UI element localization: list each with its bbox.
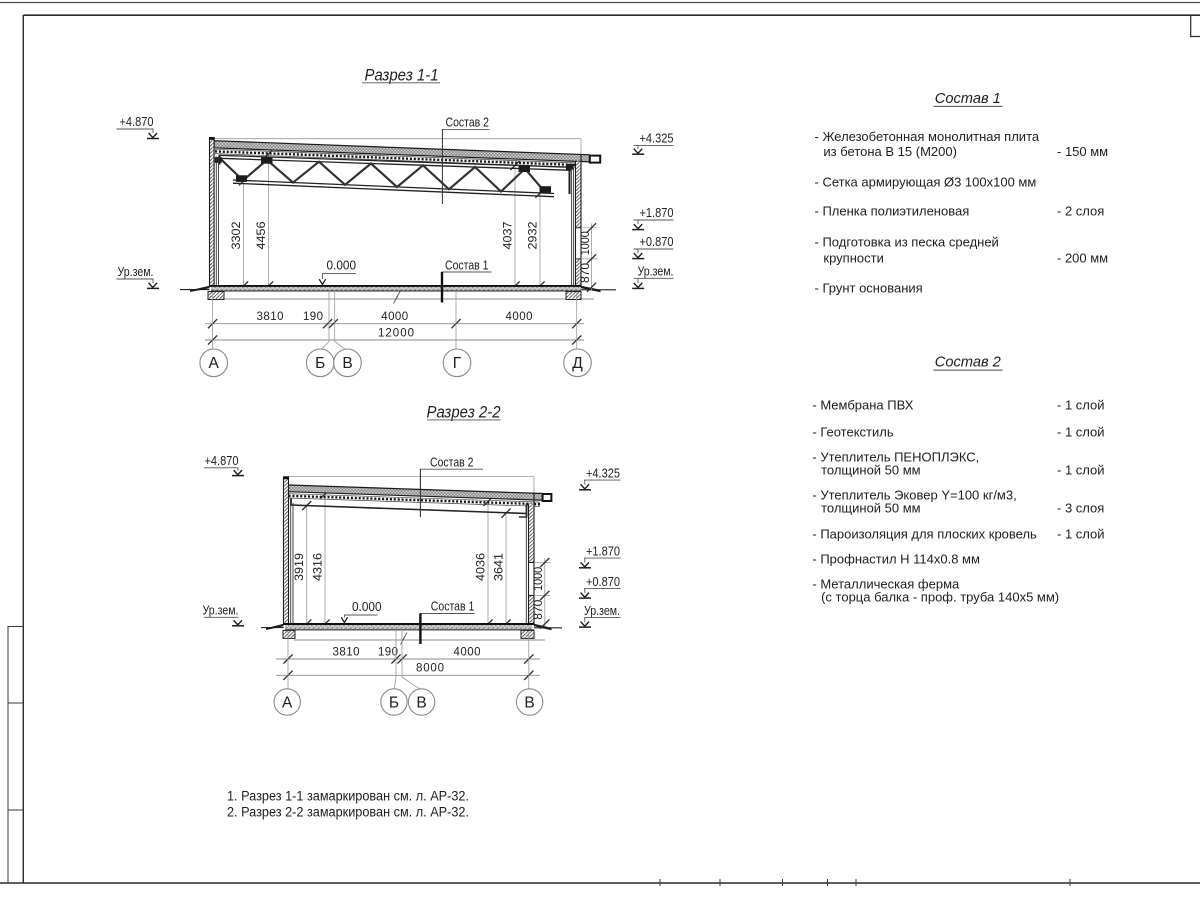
svg-text:- 1 слой: - 1 слой [1057, 398, 1105, 413]
svg-text:4316: 4316 [312, 553, 324, 581]
svg-text:- Железобетонная монолитная п: - Железобетонная монолитная плита [815, 129, 1040, 144]
svg-text:+4.325: +4.325 [586, 466, 620, 480]
svg-text:Б: Б [315, 355, 325, 372]
svg-text:А: А [209, 355, 220, 372]
svg-text:Б: Б [389, 694, 399, 711]
svg-text:- Профнастил Н 114х0.8 мм: - Профнастил Н 114х0.8 мм [812, 552, 980, 567]
svg-text:3919: 3919 [294, 553, 306, 581]
svg-text:В: В [342, 355, 352, 372]
svg-text:1. Разрез 1-1 замаркирован см.: 1. Разрез 1-1 замаркирован см. л. АР-32. [227, 789, 469, 804]
svg-text:- 200 мм: - 200 мм [1057, 251, 1108, 266]
svg-text:+0.870: +0.870 [586, 575, 620, 589]
svg-text:- 3 слоя: - 3 слоя [1057, 501, 1104, 516]
svg-text:- Пленка полиэтиленовая: - Пленка полиэтиленовая [815, 204, 970, 219]
svg-text:190: 190 [303, 311, 323, 323]
svg-text:- 2 слоя: - 2 слоя [1057, 204, 1104, 219]
svg-text:0.000: 0.000 [352, 600, 382, 614]
svg-text:- Сетка армирующая Ø3 100х100: - Сетка армирующая Ø3 100х100 мм [815, 175, 1037, 190]
svg-text:Д: Д [572, 355, 583, 372]
svg-text:Состав 2: Состав 2 [446, 116, 490, 130]
svg-text:4000: 4000 [454, 646, 481, 658]
svg-text:Разрез 1-1: Разрез 1-1 [365, 66, 439, 84]
svg-text:4456: 4456 [256, 222, 268, 250]
svg-text:крупности: крупности [823, 251, 883, 266]
svg-text:- Геотекстиль: - Геотекстиль [812, 425, 893, 440]
svg-text:В: В [524, 694, 534, 711]
svg-text:1000: 1000 [533, 567, 545, 591]
svg-text:870: 870 [580, 263, 592, 283]
svg-text:Разрез 2-2: Разрез 2-2 [427, 403, 501, 421]
svg-text:1000: 1000 [580, 231, 592, 255]
svg-text:Ур.зем.: Ур.зем. [584, 604, 620, 618]
svg-text:4000: 4000 [381, 311, 408, 323]
svg-text:Состав 2: Состав 2 [935, 354, 1002, 371]
svg-text:+4.870: +4.870 [120, 115, 154, 129]
svg-text:190: 190 [378, 646, 398, 658]
svg-text:- Мембрана ПВХ: - Мембрана ПВХ [812, 398, 913, 413]
svg-text:Состав 2: Состав 2 [430, 455, 474, 469]
svg-text:3810: 3810 [333, 646, 360, 658]
svg-text:- 1 слой: - 1 слой [1057, 527, 1105, 542]
svg-text:Ур.зем.: Ур.зем. [638, 264, 674, 278]
svg-text:+0.870: +0.870 [640, 235, 674, 249]
svg-text:(с торца балка - проф. труба 1: (с торца балка - проф. труба 140х5 мм) [821, 590, 1059, 605]
svg-text:3302: 3302 [231, 222, 243, 250]
svg-text:- 1 слой: - 1 слой [1057, 463, 1105, 478]
svg-text:- 1 слой: - 1 слой [1057, 425, 1105, 440]
svg-text:+1.870: +1.870 [586, 544, 620, 558]
svg-text:Состав 1: Состав 1 [935, 90, 1001, 107]
svg-text:Ур.зем.: Ур.зем. [118, 265, 154, 279]
svg-text:12000: 12000 [378, 327, 414, 339]
svg-text:4037: 4037 [502, 222, 514, 250]
svg-text:толщиной 50 мм: толщиной 50 мм [821, 463, 921, 478]
svg-text:Состав 1: Состав 1 [445, 259, 489, 273]
svg-text:4000: 4000 [506, 311, 533, 323]
svg-text:Ур.зем.: Ур.зем. [203, 604, 239, 618]
svg-text:3641: 3641 [493, 553, 505, 581]
svg-text:Состав 1: Состав 1 [431, 600, 475, 614]
svg-text:3810: 3810 [257, 311, 284, 323]
svg-text:- Пароизоляция для плоских кро: - Пароизоляция для плоских кровель [812, 527, 1037, 542]
svg-text:А: А [282, 694, 293, 711]
svg-text:+4.870: +4.870 [205, 454, 239, 468]
svg-text:2. Разрез 2-2 замаркирован см.: 2. Разрез 2-2 замаркирован см. л. АР-32. [227, 805, 469, 820]
svg-text:В: В [416, 694, 426, 711]
svg-text:из бетона В 15 (М200): из бетона В 15 (М200) [823, 144, 957, 159]
svg-text:- 150 мм: - 150 мм [1057, 144, 1108, 159]
svg-text:2932: 2932 [527, 222, 539, 250]
svg-text:+1.870: +1.870 [640, 206, 674, 220]
svg-text:8000: 8000 [416, 663, 444, 675]
svg-text:толщиной 50 мм: толщиной 50 мм [821, 501, 921, 516]
svg-text:870: 870 [533, 600, 545, 620]
svg-text:4036: 4036 [475, 553, 487, 581]
svg-text:- Подготовка из песка средней: - Подготовка из песка средней [815, 235, 999, 250]
svg-text:0.000: 0.000 [327, 258, 357, 272]
svg-text:- Грунт основания: - Грунт основания [815, 281, 923, 296]
svg-text:Г: Г [453, 355, 462, 372]
svg-text:+4.325: +4.325 [640, 132, 674, 146]
